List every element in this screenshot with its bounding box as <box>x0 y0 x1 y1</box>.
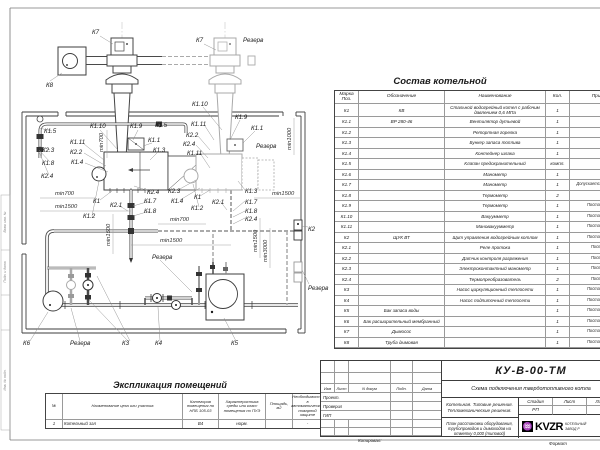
stage-cell: Стадия Лист Листов РП - - ♒ KVZR КОТЕЛЬН… <box>519 398 600 438</box>
stage-label: Стадия <box>519 398 553 406</box>
label-k1-1: К1.1 <box>251 125 263 132</box>
chimney-k8 <box>58 47 86 75</box>
col-header-mark: Марка Поз. <box>335 91 359 104</box>
label-k3: К3 <box>122 340 130 347</box>
cell-designation <box>359 212 445 223</box>
kvzr-logo: ♒ KVZR КОТЕЛЬНЫЙ ЗАВОД Р <box>519 415 600 438</box>
label-rezerv: Резерв <box>256 143 277 150</box>
label-k1-5: К1.5 <box>155 122 168 129</box>
cell-name <box>445 306 546 317</box>
dim-min1500: min1500 <box>253 229 259 252</box>
cell-qty: компл. <box>546 159 570 170</box>
cell-designation <box>359 159 445 170</box>
cell-note <box>570 170 600 181</box>
cell-note: Постав. с ЩУК <box>570 254 600 265</box>
cell-name: Бункер запаса топлива <box>445 138 546 149</box>
col-header-area: Площадь, м2 <box>266 394 293 420</box>
equipment-table: Марка Поз. Обозначение Наименование Кол.… <box>334 90 600 349</box>
cell-mark: К4 <box>335 296 359 307</box>
label-k1-5: К1.5 <box>44 128 57 135</box>
cell-mark: К2.2 <box>335 254 359 265</box>
label-k1-8: К1.8 <box>245 208 258 215</box>
cell-designation <box>359 180 445 191</box>
cell-qty: 1 <box>546 212 570 223</box>
cell-qty: 1 <box>546 243 570 254</box>
pump-k3 <box>83 268 93 305</box>
tank-k6 <box>43 291 63 311</box>
pump-k3-reserve <box>67 268 76 305</box>
dim-min1500: min1500 <box>272 191 295 197</box>
cell-designation <box>359 275 445 286</box>
equipment-row: К1 КВ Стальной водогрейный котел с рабоч… <box>335 104 600 117</box>
cell-mark: К1.8 <box>335 191 359 202</box>
cell-qty: 1 <box>546 254 570 265</box>
cell-note: Постав. с ЩУК <box>570 243 600 254</box>
explication-table: № Наименование цеха или участка Категори… <box>45 393 335 429</box>
equipment-row: К1.8 Термометр 2 <box>335 191 600 202</box>
control-panel-k2 <box>294 220 302 240</box>
sheet-value: - <box>553 406 587 415</box>
duct-stub <box>248 56 255 65</box>
cell-mark: К1.6 <box>335 170 359 181</box>
dim-min700: min700 <box>99 132 105 152</box>
label-k1-8: К1.8 <box>144 208 157 215</box>
revision-table: Изм Лист N докум Подп. Дата Проект. Пров… <box>321 361 442 436</box>
cell-designation <box>359 201 445 212</box>
cell-designation <box>359 128 445 139</box>
strip-label: Взам. инв. № <box>3 211 7 232</box>
cell-qty: 1 <box>546 222 570 233</box>
cell-name: Электроконтактный манометр <box>445 264 546 275</box>
cell-note: Допускается замена поз. К2.3 <box>570 180 600 191</box>
control-panel-reserve <box>294 262 302 282</box>
cell-designation <box>359 243 445 254</box>
rev-col-sign: Подп. <box>391 384 413 393</box>
cell-mark: К1.5 <box>335 159 359 170</box>
label-k2-4: К2.4 <box>245 216 258 223</box>
equipment-row: К8 Труба дымовая 1 Постав. по соглас. <box>335 338 600 349</box>
cell-designation: Труба дымовая <box>359 338 445 349</box>
label-k1: К1 <box>93 198 100 205</box>
cell-qty: 1 <box>546 170 570 181</box>
cell-note: Постав. по соглас. <box>570 306 600 317</box>
equipment-row: К1.4 Контейнер шлака 1 <box>335 149 600 160</box>
cell-name: Щит управления водогрейным котлом <box>445 233 546 244</box>
equipment-row: К6 Бак расширительный мембранный 1 Поста… <box>335 317 600 328</box>
label-rezerv: Резерв <box>70 340 91 347</box>
cell-designation: Бак запаса воды <box>359 306 445 317</box>
cell-designation: Бак расширительный мембранный <box>359 317 445 328</box>
cell-name: Мановакуумметр <box>445 222 546 233</box>
cell-note: Постав. по соглас. <box>570 222 600 233</box>
equipment-row: К1.9 Термометр 1 Постав. по соглас. <box>335 201 600 212</box>
label-k7: К7 <box>196 37 204 44</box>
cell-designation <box>359 285 445 296</box>
label-rezerv: Резерв <box>243 37 264 44</box>
cell-qty: 2 <box>546 275 570 286</box>
cell-note: Постав. с ЩУК <box>570 275 600 286</box>
equipment-table-body: К1 КВ Стальной водогрейный котел с рабоч… <box>335 104 600 348</box>
rev-col-doc: N докум <box>349 384 391 393</box>
label-rezerv: Резерв <box>152 254 173 261</box>
cell-mark: К2.3 <box>335 264 359 275</box>
label-k6: К6 <box>23 340 31 347</box>
label-k1: К1 <box>194 194 201 201</box>
explication-title: Экспликация помещений <box>45 380 295 390</box>
equipment-row: К1.5 Клапан предохранительный компл. <box>335 159 600 170</box>
cell-name: Клапан предохранительный <box>445 159 546 170</box>
fan-k1-1 <box>128 138 144 150</box>
label-k2-4: К2.4 <box>147 189 160 196</box>
cell-name: Датчик контроля разряжения <box>445 254 546 265</box>
label-k2-4: К2.4 <box>41 173 54 180</box>
cell-name: Контейнер шлака <box>445 149 546 160</box>
role-gip: ГИП <box>321 411 391 420</box>
cell-name: Термопреобразователь <box>445 275 546 286</box>
strip-label: Подп. и дата <box>3 261 7 282</box>
cell-qty: 1 <box>546 296 570 307</box>
cell-qty: 1 <box>546 264 570 275</box>
cell-note <box>570 117 600 128</box>
dim-min700: min700 <box>55 191 75 197</box>
cell-mark: К1.2 <box>335 128 359 139</box>
title-block-right: КУ-В-00-ТМ Схема подключения твердотопли… <box>441 361 600 436</box>
label-k2: К2 <box>308 226 316 233</box>
equipment-row: К2.1 Реле протока 1 Постав. с ЩУК <box>335 243 600 254</box>
cell-note: Постав. по соглас. <box>570 285 600 296</box>
cell-mark: К2.1 <box>335 243 359 254</box>
equipment-row: К1.2 Ретортная горелка 1 <box>335 128 600 139</box>
role-project: Проект. <box>321 393 391 402</box>
cell-name: Термометр <box>445 201 546 212</box>
equipment-row: К2.3 Электроконтактный манометр 1 Постав… <box>335 264 600 275</box>
cell-note <box>570 149 600 160</box>
label-k1-9: К1.9 <box>235 114 248 121</box>
cell-name: Насос подпиточный теплосети <box>445 296 546 307</box>
cell-mark: К6 <box>335 317 359 328</box>
label-k1-10: К1.10 <box>192 101 208 108</box>
cell-designation: КВ <box>359 104 445 117</box>
cell-mark: К1.10 <box>335 212 359 223</box>
dim-min3000: min3000 <box>263 239 269 262</box>
equipment-row: К1.6 Манометр 1 <box>335 170 600 181</box>
cell-name: Вакуумметр <box>445 212 546 223</box>
label-k5: К5 <box>231 340 239 347</box>
project-name: Котельная. Типовые решения. Тепломеханич… <box>441 398 518 418</box>
cell-environment: норм. <box>219 420 266 428</box>
cell-designation: ВР 280-46 <box>359 117 445 128</box>
cell-designation <box>359 191 445 202</box>
label-k4: К4 <box>155 340 163 347</box>
cell-qty: 1 <box>546 306 570 317</box>
cell-qty: 1 <box>546 201 570 212</box>
kvzr-logo-icon: ♒ <box>522 421 533 432</box>
col-header-num: № <box>46 394 63 420</box>
cell-mark: К1.3 <box>335 138 359 149</box>
col-header-environment: Характеристика среды или класс помещения… <box>219 394 266 420</box>
col-header-name: Наименование <box>445 91 546 104</box>
cell-name: Насос циркуляционный теплосети <box>445 285 546 296</box>
tank-k5 <box>196 262 244 320</box>
cell-mark: К2.4 <box>335 275 359 286</box>
equipment-row: К1.10 Вакуумметр 1 Постав. по соглас. <box>335 212 600 223</box>
fan-k1-1-reserve <box>227 139 243 151</box>
equipment-row: К4 Насос подпиточный теплосети 1 Постав.… <box>335 296 600 307</box>
drawing-sheet: Взам. инв. № Подп. и дата Инв. № подл. <box>0 0 600 450</box>
col-header-designation: Обозначение <box>359 91 445 104</box>
label-k2-2: К2.2 <box>186 132 199 139</box>
label-k2-1: К2.1 <box>212 199 224 206</box>
flue-duct-reserve <box>162 57 210 65</box>
cell-mark: К1.1 <box>335 117 359 128</box>
col-header-category: Категория помещения по НПБ 105-03 <box>183 394 219 420</box>
equipment-row: К2 ЩУК ВТ Щит управления водогрейным кот… <box>335 233 600 244</box>
cell-qty: 1 <box>546 138 570 149</box>
cell-designation <box>359 296 445 307</box>
cell-designation <box>359 222 445 233</box>
cell-name: Ретортная горелка <box>445 128 546 139</box>
format-label: Формат <box>549 441 567 446</box>
cell-qty: 1 <box>546 317 570 328</box>
cell-mark: К5 <box>335 306 359 317</box>
label-k1-7: К1.7 <box>144 198 157 205</box>
cell-designation <box>359 264 445 275</box>
cell-qty: 1 <box>546 149 570 160</box>
cell-mark: К1.9 <box>335 201 359 212</box>
cell-qty: 1 <box>546 285 570 296</box>
cell-designation <box>359 170 445 181</box>
strip-label: Инв. № подл. <box>3 369 7 390</box>
cell-mark: К1.4 <box>335 149 359 160</box>
label-k1-2: К1.2 <box>191 205 204 212</box>
cell-designation <box>359 149 445 160</box>
cell-mark: К1 <box>335 104 359 117</box>
cell-name <box>445 338 546 349</box>
equipment-table-title: Состав котельной <box>334 76 546 87</box>
label-k8: К8 <box>46 82 54 89</box>
cell-area <box>266 420 293 428</box>
equipment-row: К1.3 Бункер запаса топлива 1 <box>335 138 600 149</box>
explication-row: 1 Котельный зал В4 норм. - <box>46 420 334 428</box>
cell-mark: К1.11 <box>335 222 359 233</box>
cell-name: Манометр <box>445 180 546 191</box>
document-subtitle: Схема подключения твердотопливного котла <box>441 381 600 398</box>
label-k1-11: К1.11 <box>191 121 206 128</box>
cell-mark: К7 <box>335 327 359 338</box>
label-k1-1: К1.1 <box>148 137 160 144</box>
label-k2-3: К2.3 <box>42 147 55 154</box>
cell-name: Манометр <box>445 170 546 181</box>
cell-qty: 1 <box>546 338 570 349</box>
cell-name <box>445 327 546 338</box>
label-k2-1: К2.1 <box>110 202 122 209</box>
cell-mark: К8 <box>335 338 359 349</box>
cell-note: Постав. по соглас. <box>570 327 600 338</box>
label-k1-9: К1.9 <box>130 123 143 130</box>
cell-mark: К3 <box>335 285 359 296</box>
kvzr-logo-text: KVZR <box>535 421 563 433</box>
dim-min1500: min1500 <box>106 223 112 246</box>
cell-note: Постав. по соглас. <box>570 233 600 244</box>
cell-qty: 1 <box>546 180 570 191</box>
cell-note: Постав. с ЩУК <box>570 264 600 275</box>
label-k1-11: К1.11 <box>187 150 202 157</box>
title-block: Изм Лист N докум Подп. Дата Проект. Пров… <box>320 360 600 437</box>
boiler-k1-reserve <box>184 154 274 193</box>
equipment-row: К2.4 Термопреобразователь 2 Постав. с ЩУ… <box>335 275 600 286</box>
cell-qty: 2 <box>546 191 570 202</box>
cell-note <box>570 138 600 149</box>
sheet-label: Лист <box>553 398 587 406</box>
role-checked: Проверил <box>321 402 391 411</box>
cell-qty: 1 <box>546 104 570 117</box>
explication-header: № Наименование цеха или участка Категори… <box>46 394 334 420</box>
label-k2-2: К2.2 <box>70 149 83 156</box>
equipment-row: К1.1 ВР 280-46 Вентилятор дутьевой 1 <box>335 117 600 128</box>
dim-min700: min700 <box>170 217 190 223</box>
col-header-room-name: Наименование цеха или участка <box>63 394 183 420</box>
label-k1-3: К1.3 <box>153 147 166 154</box>
copied-label: Копировал: <box>358 438 382 443</box>
cell-qty: 1 <box>546 128 570 139</box>
equipment-row: К3 Насос циркуляционный теплосети 1 Пост… <box>335 285 600 296</box>
cell-note <box>570 159 600 170</box>
cell-name <box>445 317 546 328</box>
cell-designation: ЩУК ВТ <box>359 233 445 244</box>
col-header-fire-protection: Необходимость в автоматической пожарной … <box>293 394 323 420</box>
cell-note <box>570 104 600 117</box>
sheets-label: Листов <box>587 398 600 406</box>
cell-qty: 1 <box>546 327 570 338</box>
label-k1-8: К1.8 <box>42 160 55 167</box>
cell-qty: 1 <box>546 117 570 128</box>
pump-k4 <box>145 294 192 310</box>
cell-mark: К1.7 <box>335 180 359 191</box>
label-k1-2: К1.2 <box>83 213 96 220</box>
document-code: КУ-В-00-ТМ <box>441 361 600 381</box>
equipment-row: К7 Дымосос 1 Постав. по соглас. <box>335 327 600 338</box>
label-k7: К7 <box>92 29 100 36</box>
cell-num: 1 <box>46 420 63 428</box>
equipment-row: К5 Бак запаса воды 1 Постав. по соглас. <box>335 306 600 317</box>
cell-name: Вентилятор дутьевой <box>445 117 546 128</box>
cell-designation: Дымосос <box>359 327 445 338</box>
cell-note: Постав. по соглас. <box>570 296 600 307</box>
label-k1-3: К1.3 <box>245 188 258 195</box>
sheets-value: - <box>587 406 600 415</box>
equipment-row: К1.7 Манометр 1 Допускается замена поз. … <box>335 180 600 191</box>
dim-min1500: min1500 <box>55 204 78 210</box>
cell-name: Реле протока <box>445 243 546 254</box>
cell-qty: 1 <box>546 233 570 244</box>
equipment-row: К2.2 Датчик контроля разряжения 1 Постав… <box>335 254 600 265</box>
cell-note: Постав. по соглас. <box>570 338 600 349</box>
sheet-name: План расстановки оборудования, трубопров… <box>441 418 518 439</box>
cell-note: Постав. по соглас. <box>570 212 600 223</box>
label-k1-7: К1.7 <box>245 199 258 206</box>
rev-col-list: Лист <box>335 384 349 393</box>
dim-min1000: min1000 <box>287 127 293 150</box>
cell-note: Постав. по соглас. <box>570 201 600 212</box>
col-header-note: Примечание <box>570 91 600 104</box>
rev-col-izm: Изм <box>321 384 335 393</box>
cell-name: Стальной водогрейный котел с рабочим дав… <box>445 104 546 117</box>
stage-value: РП <box>519 406 553 415</box>
label-k1-4: К1.4 <box>71 159 84 166</box>
cell-note <box>570 191 600 202</box>
cell-mark: К2 <box>335 233 359 244</box>
cell-designation <box>359 138 445 149</box>
cell-note <box>570 128 600 139</box>
label-k2-3: К2.3 <box>168 188 181 195</box>
cell-designation <box>359 254 445 265</box>
project-name-cell: Котельная. Типовые решения. Тепломеханич… <box>441 398 519 438</box>
equipment-table-header: Марка Поз. Обозначение Наименование Кол.… <box>335 91 600 104</box>
rev-col-date: Дата <box>413 384 441 393</box>
dim-min1500: min1500 <box>160 238 183 244</box>
label-rezerv: Резерв <box>308 285 329 292</box>
col-header-qty: Кол. <box>546 91 570 104</box>
label-k1-10: К1.10 <box>90 123 106 130</box>
equipment-row: К1.11 Мановакуумметр 1 Постав. по соглас… <box>335 222 600 233</box>
cell-category: В4 <box>183 420 219 428</box>
cell-fire-protection: - <box>293 420 323 428</box>
label-k1-11: К1.11 <box>70 139 85 146</box>
cell-note: Постав. по соглас. <box>570 317 600 328</box>
label-k2-4: К2.4 <box>183 141 196 148</box>
cell-room-name: Котельный зал <box>63 420 183 428</box>
cell-name: Термометр <box>445 191 546 202</box>
company-name: КОТЕЛЬНЫЙ ЗАВОД Р <box>565 422 586 431</box>
label-k1-4: К1.4 <box>171 198 184 205</box>
